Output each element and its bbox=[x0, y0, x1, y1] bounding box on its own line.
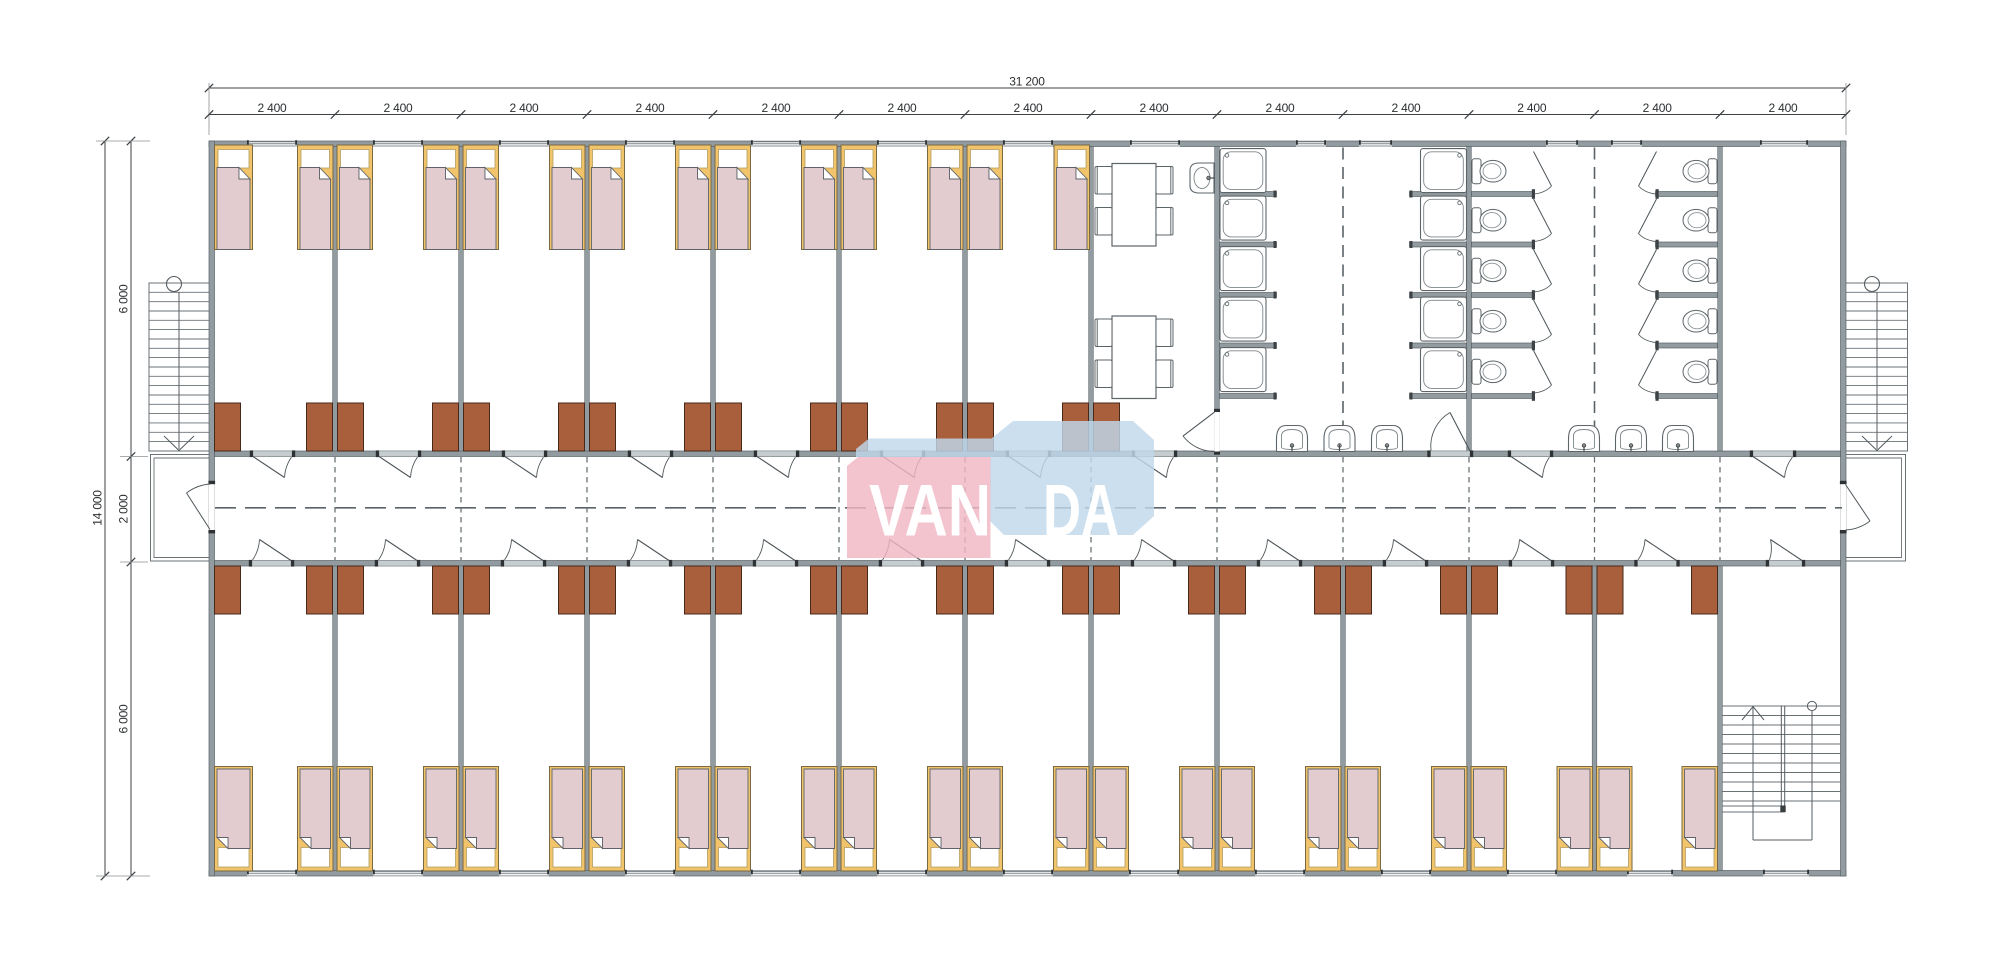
svg-text:2 000: 2 000 bbox=[117, 494, 131, 524]
svg-text:2 400: 2 400 bbox=[1013, 101, 1043, 115]
svg-text:2 400: 2 400 bbox=[1768, 101, 1798, 115]
svg-text:VAN: VAN bbox=[869, 471, 991, 552]
svg-text:2 400: 2 400 bbox=[1139, 101, 1169, 115]
svg-text:2 400: 2 400 bbox=[509, 101, 539, 115]
svg-text:2 400: 2 400 bbox=[257, 101, 287, 115]
svg-text:2 400: 2 400 bbox=[761, 101, 791, 115]
svg-text:2 400: 2 400 bbox=[383, 101, 413, 115]
svg-text:6 000: 6 000 bbox=[117, 284, 131, 314]
svg-text:DA: DA bbox=[1043, 471, 1119, 552]
svg-text:2 400: 2 400 bbox=[1391, 101, 1421, 115]
svg-text:6 000: 6 000 bbox=[117, 704, 131, 734]
svg-text:2 400: 2 400 bbox=[1517, 101, 1547, 115]
svg-text:2 400: 2 400 bbox=[635, 101, 665, 115]
svg-text:2 400: 2 400 bbox=[1643, 101, 1673, 115]
svg-text:14 000: 14 000 bbox=[91, 490, 105, 526]
svg-text:2 400: 2 400 bbox=[1265, 101, 1295, 115]
svg-text:31 200: 31 200 bbox=[1009, 75, 1045, 89]
svg-text:2 400: 2 400 bbox=[887, 101, 917, 115]
